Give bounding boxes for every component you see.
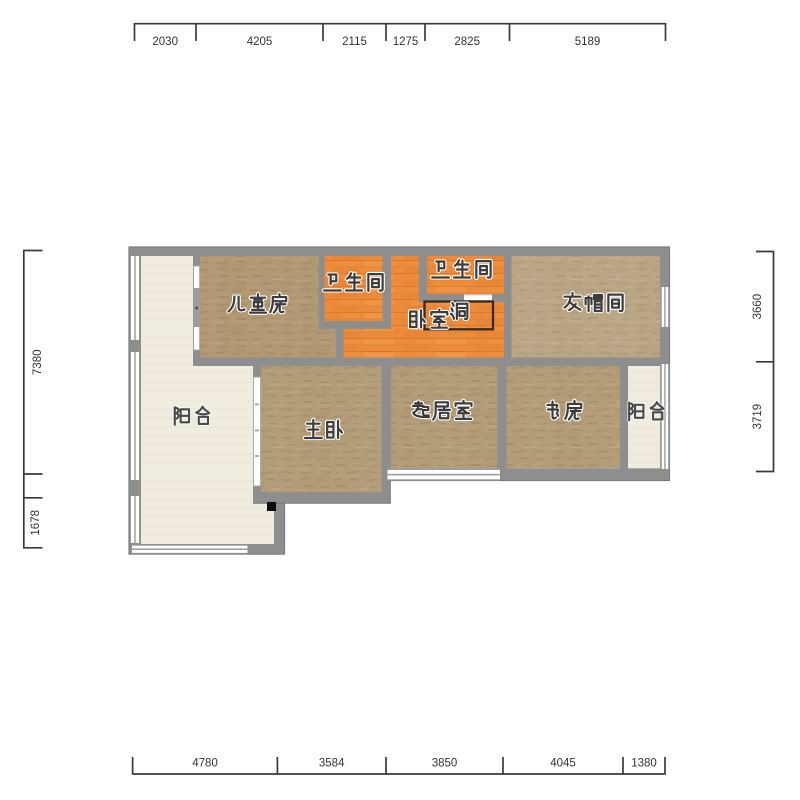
svg-text:2825: 2825 (454, 36, 480, 48)
svg-text:2115: 2115 (342, 36, 367, 48)
svg-text:3850: 3850 (432, 758, 458, 770)
svg-text:3660: 3660 (752, 294, 764, 320)
svg-text:4045: 4045 (550, 758, 576, 770)
svg-text:2030: 2030 (152, 36, 178, 48)
svg-text:1275: 1275 (393, 36, 419, 48)
svg-text:7380: 7380 (32, 350, 44, 376)
svg-text:1380: 1380 (631, 758, 657, 770)
svg-text:5189: 5189 (575, 36, 601, 48)
svg-text:3719: 3719 (752, 404, 764, 430)
svg-text:3584: 3584 (319, 758, 345, 770)
svg-text:1678: 1678 (30, 510, 42, 536)
svg-text:4205: 4205 (247, 36, 273, 48)
svg-text:4780: 4780 (192, 758, 218, 770)
